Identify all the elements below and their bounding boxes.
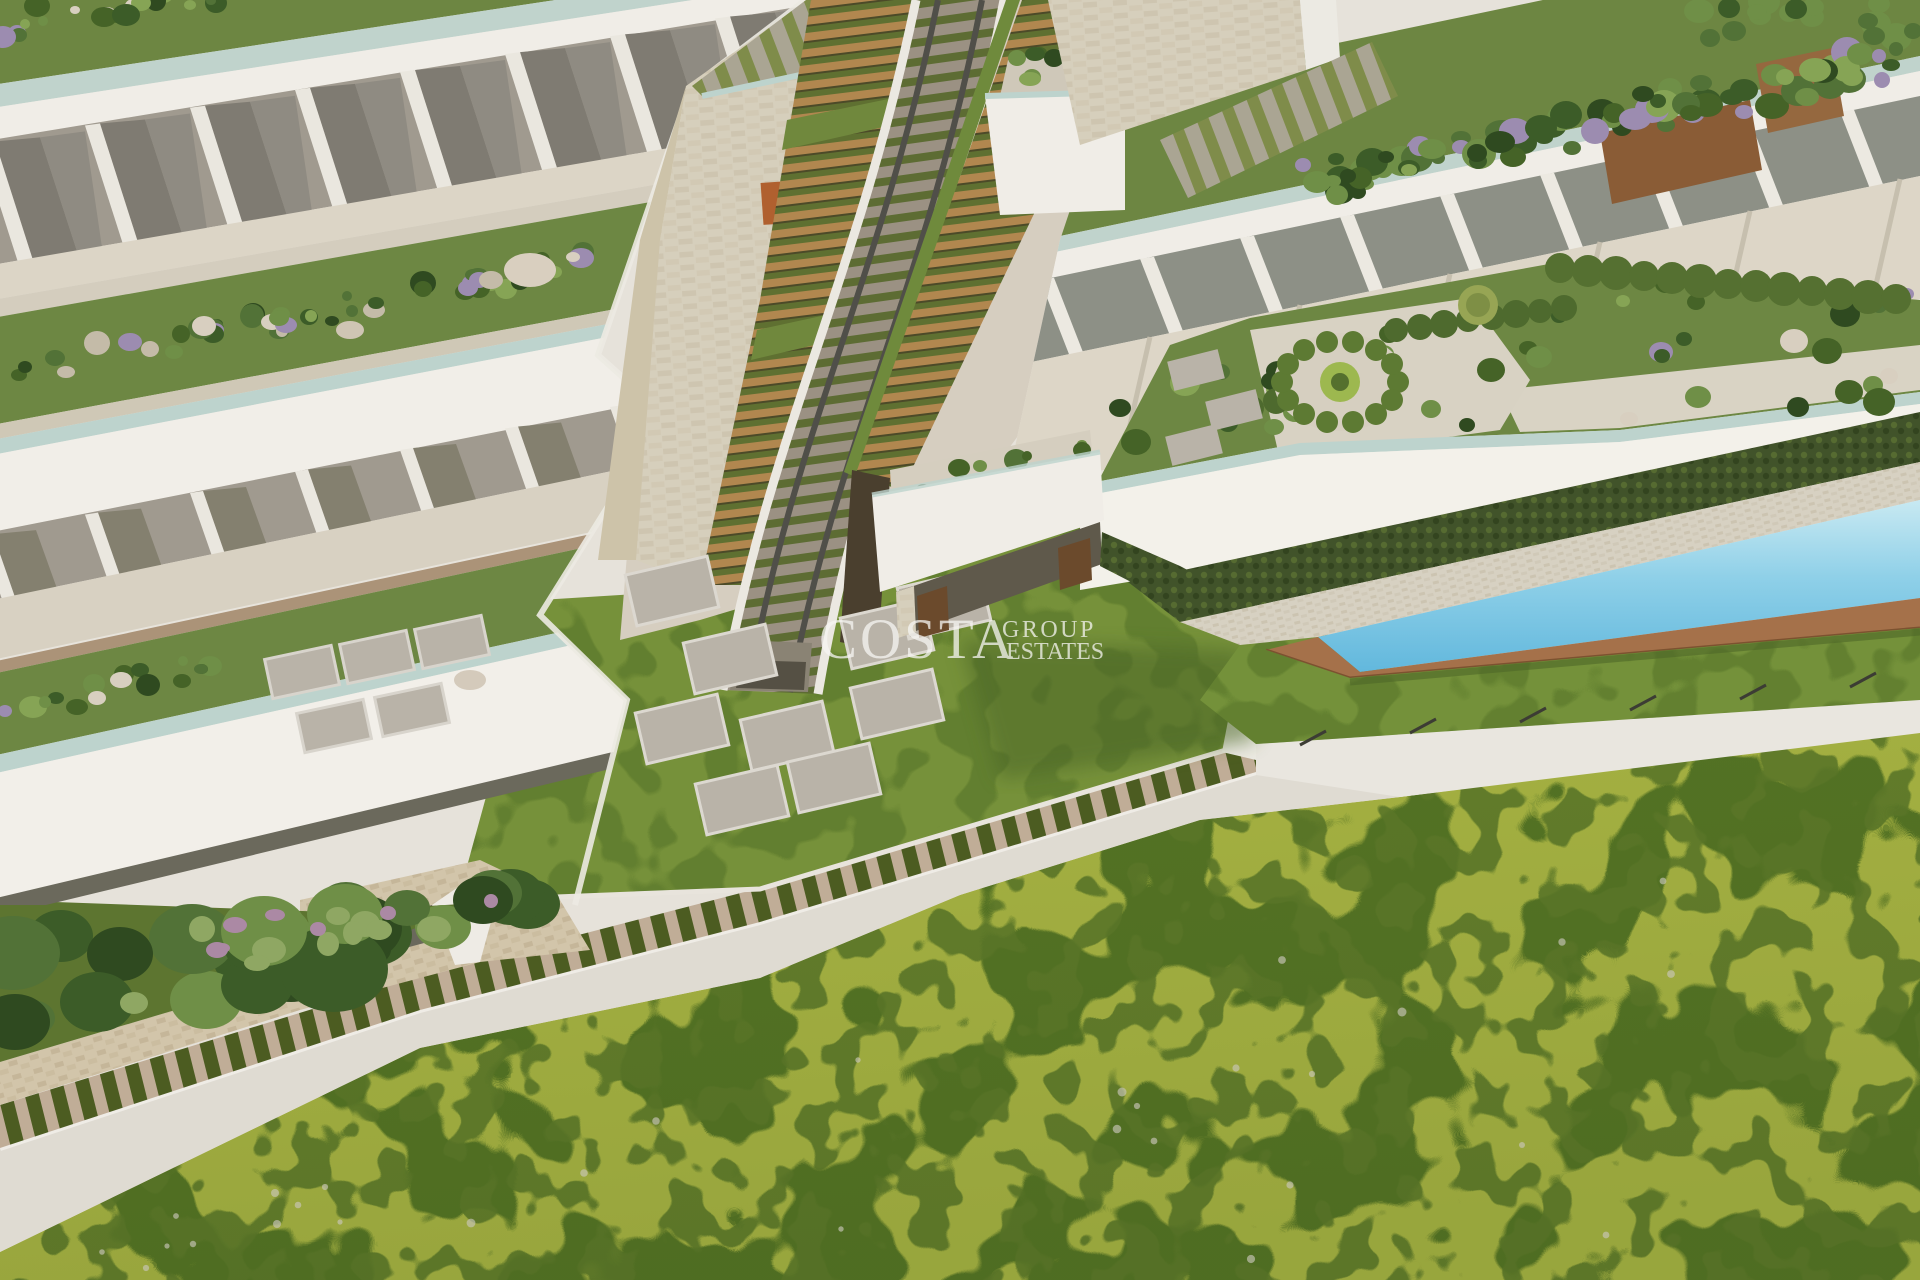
svg-text:COSTA: COSTA xyxy=(819,608,1016,671)
svg-text:ESTATES: ESTATES xyxy=(1006,639,1104,665)
